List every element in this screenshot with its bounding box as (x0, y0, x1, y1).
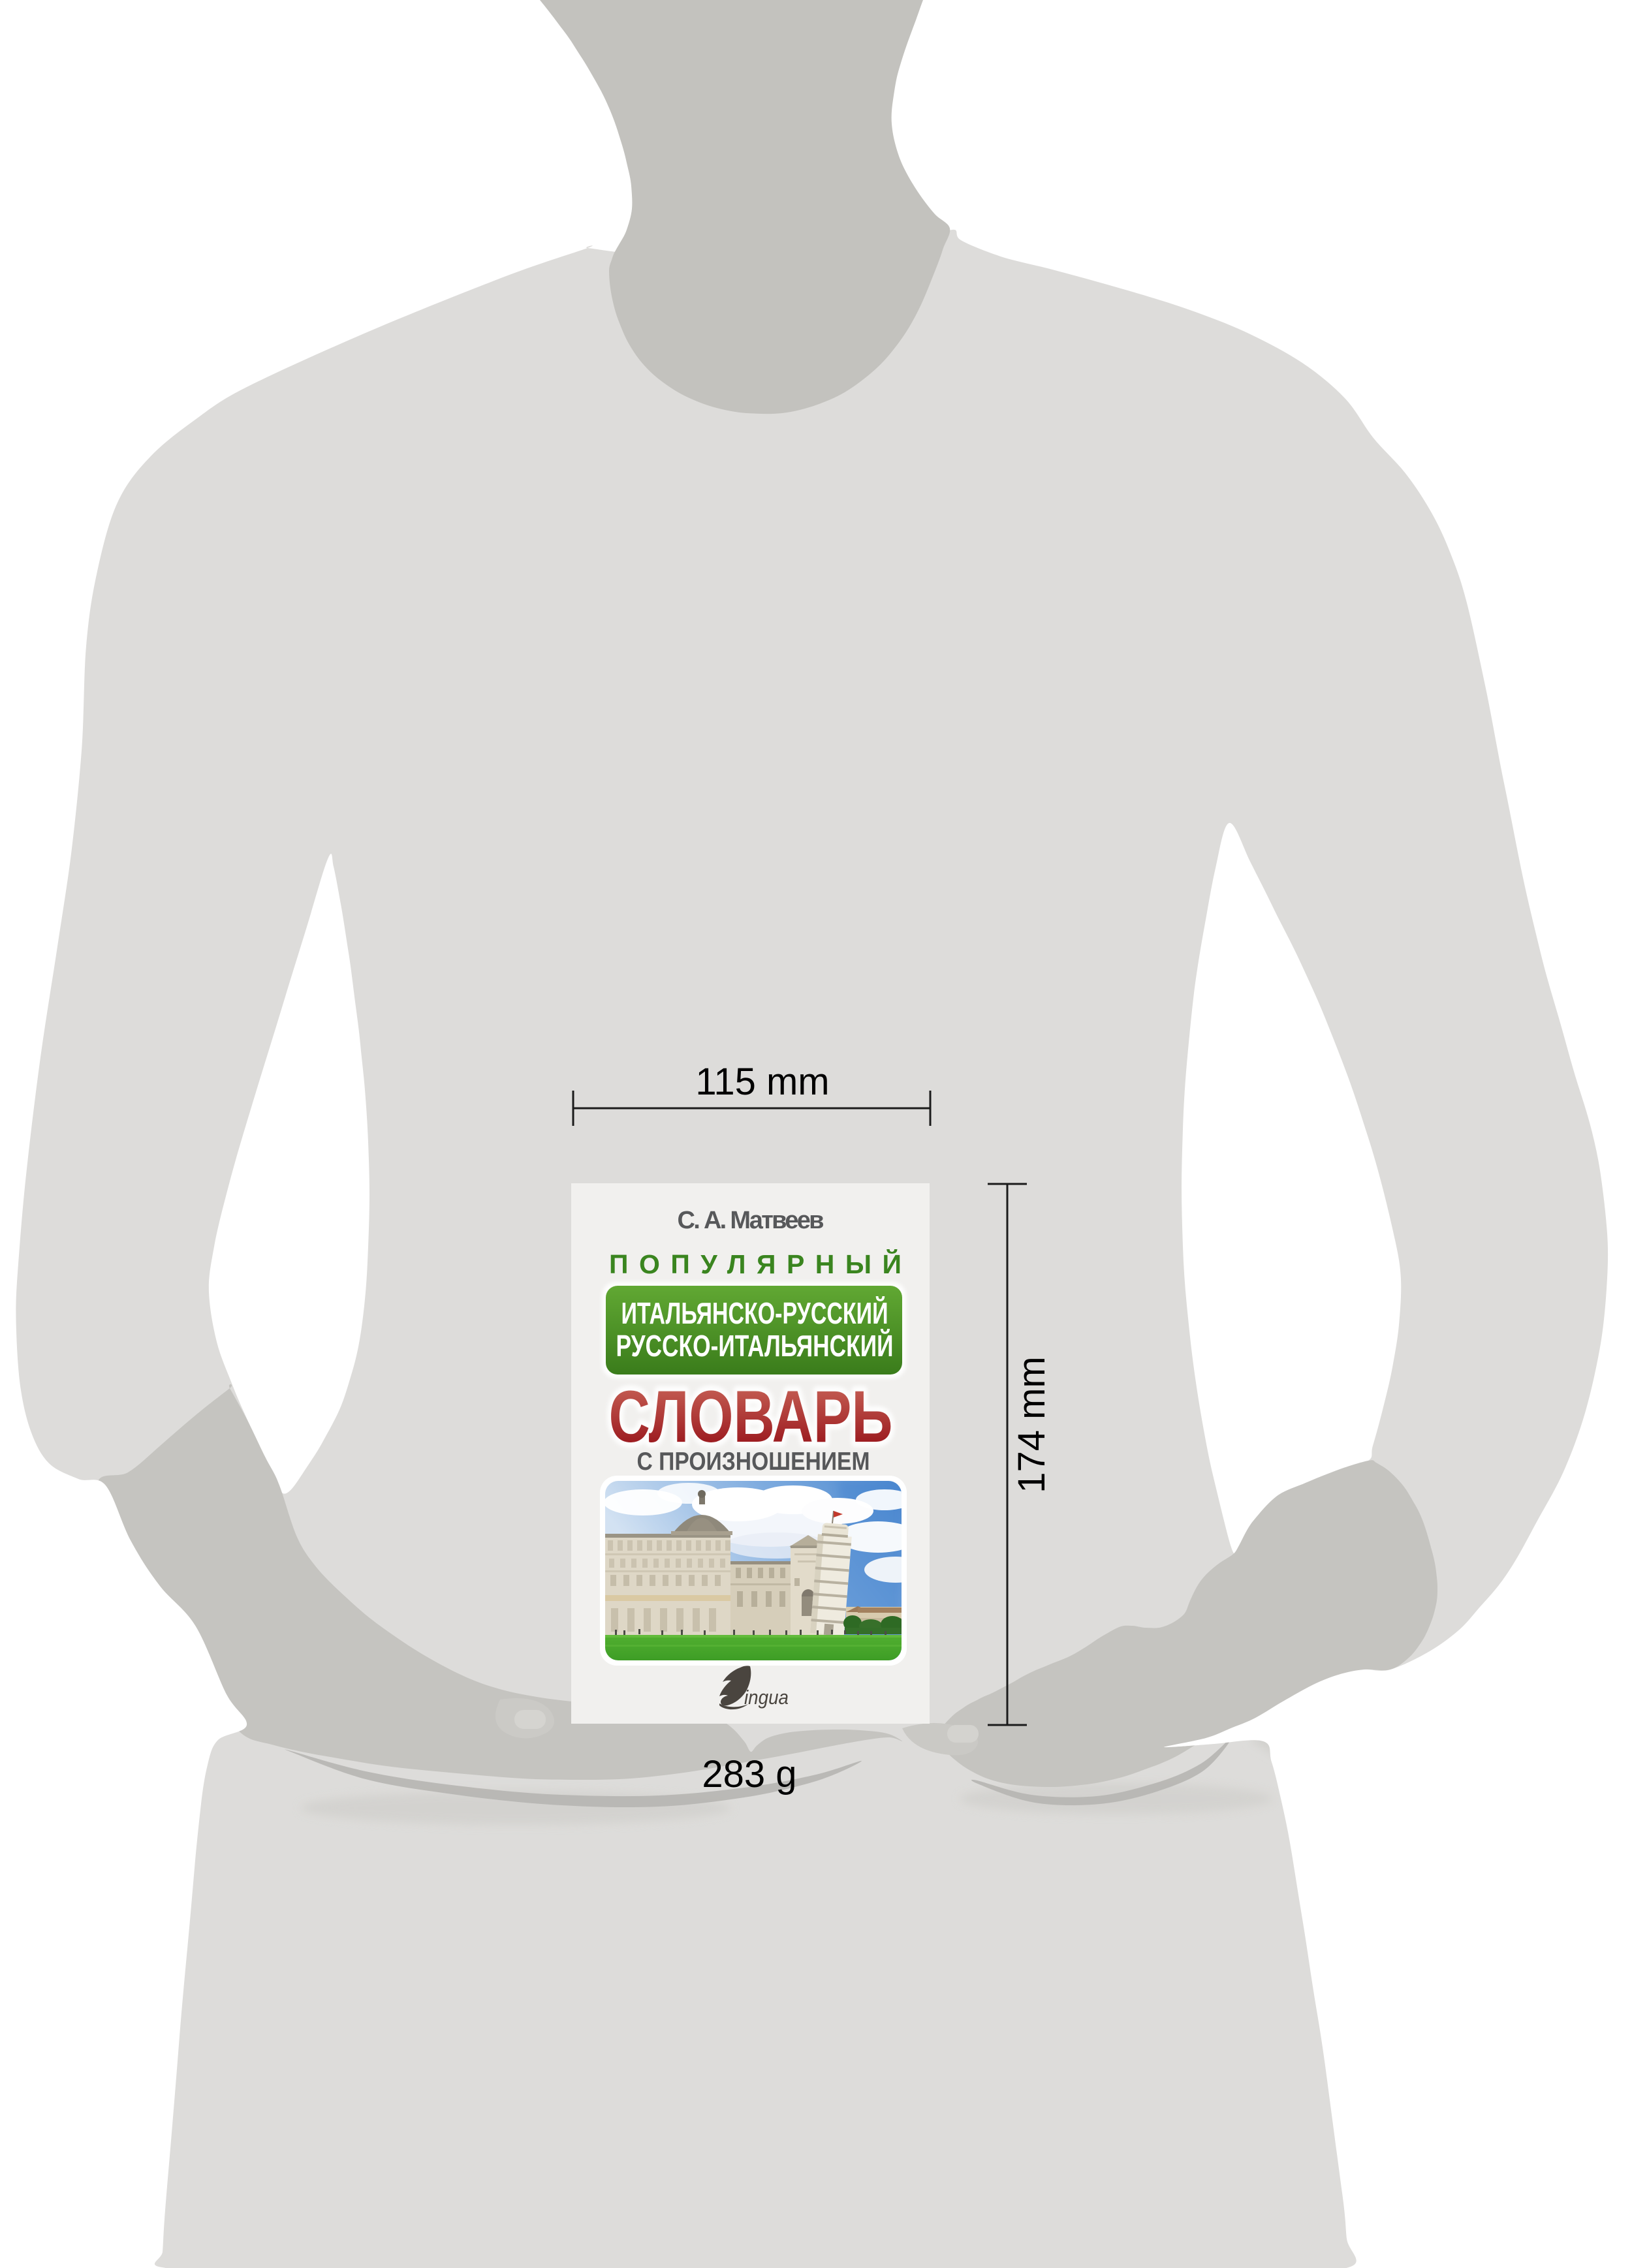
svg-text:РУССКО-ИТАЛЬЯНСКИЙ: РУССКО-ИТАЛЬЯНСКИЙ (616, 1329, 894, 1363)
svg-text:283 g: 283 g (702, 1753, 796, 1795)
svg-text:174 mm: 174 mm (1011, 1356, 1053, 1493)
svg-text:С. А. Матвеев: С. А. Матвеев (678, 1207, 824, 1234)
svg-text:СЛОВАРЬ: СЛОВАРЬ (609, 1376, 893, 1457)
svg-text:ingua: ingua (744, 1686, 789, 1709)
svg-text:С ПРОИЗНОШЕНИЕМ: С ПРОИЗНОШЕНИЕМ (637, 1448, 870, 1476)
svg-text:115 mm: 115 mm (695, 1061, 829, 1103)
svg-text:ИТАЛЬЯНСКО-РУССКИЙ: ИТАЛЬЯНСКО-РУССКИЙ (621, 1296, 888, 1330)
